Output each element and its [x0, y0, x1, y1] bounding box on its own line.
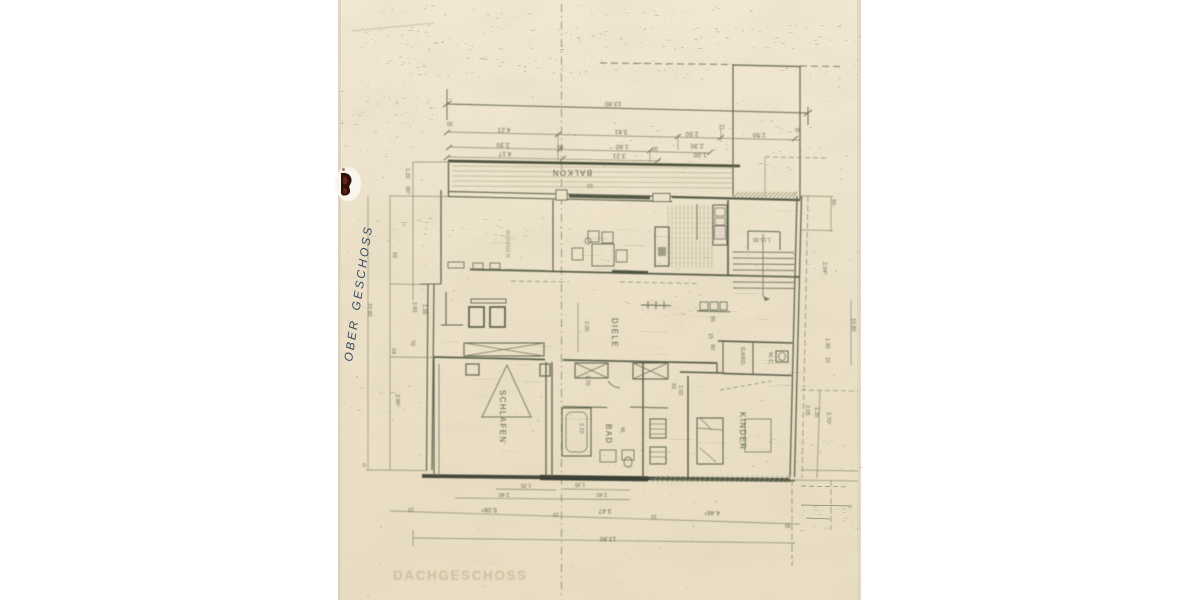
svg-text:WOHNEN: WOHNEN	[504, 230, 510, 258]
svg-text:2.02: 2.02	[677, 385, 683, 396]
svg-text:2.40: 2.40	[597, 491, 608, 497]
svg-text:2.40: 2.40	[499, 491, 510, 497]
svg-text:4.17: 4.17	[498, 150, 511, 157]
svg-text:0: 0	[363, 461, 366, 467]
svg-text:3.61: 3.61	[614, 128, 627, 135]
svg-text:95: 95	[709, 316, 715, 322]
svg-text:2.04⁵: 2.04⁵	[821, 262, 827, 275]
svg-text:W.: W.	[619, 427, 625, 433]
svg-text:1.70: 1.70	[584, 375, 590, 386]
svg-text:W.C.: W.C.	[767, 352, 773, 366]
svg-text:2.65: 2.65	[411, 302, 417, 313]
svg-text:3.70⁵: 3.70⁵	[825, 412, 831, 425]
svg-text:DIELE: DIELE	[610, 318, 619, 348]
svg-text:1.20: 1.20	[404, 168, 410, 179]
svg-text:2.00: 2.00	[583, 321, 589, 332]
svg-text:4.46⁵: 4.46⁵	[704, 509, 720, 516]
svg-text:30: 30	[785, 522, 791, 528]
svg-text:BAD: BAD	[604, 424, 613, 445]
svg-text:4.27: 4.27	[497, 126, 510, 133]
svg-text:24: 24	[390, 348, 396, 354]
svg-text:30: 30	[447, 120, 453, 126]
svg-text:1.00: 1.00	[693, 151, 706, 158]
svg-text:13.80: 13.80	[599, 535, 616, 542]
svg-text:5.08⁵: 5.08⁵	[481, 506, 497, 513]
svg-text:2.10: 2.10	[578, 423, 584, 434]
svg-text:15: 15	[824, 357, 830, 363]
svg-text:90: 90	[709, 344, 715, 350]
svg-text:3.21: 3.21	[612, 152, 625, 159]
svg-text:10.80: 10.80	[366, 303, 372, 317]
svg-text:22: 22	[408, 506, 414, 512]
svg-text:KINDER: KINDER	[738, 412, 747, 450]
svg-text:1.35: 1.35	[813, 407, 819, 418]
svg-text:15: 15	[707, 333, 713, 339]
svg-text:10.80: 10.80	[850, 318, 856, 332]
svg-text:50: 50	[587, 182, 593, 188]
svg-text:12: 12	[719, 123, 725, 129]
svg-text:1.60: 1.60	[615, 143, 628, 150]
svg-text:1.35: 1.35	[421, 304, 427, 315]
svg-text:10: 10	[651, 513, 657, 519]
svg-text:1.15 30: 1.15 30	[753, 236, 771, 242]
svg-text:30⁵: 30⁵	[404, 186, 410, 194]
svg-text:GARD.: GARD.	[739, 347, 745, 367]
svg-text:BALKON: BALKON	[551, 168, 592, 177]
svg-text:13.80: 13.80	[604, 100, 621, 107]
svg-text:3.47: 3.47	[598, 507, 611, 514]
svg-text:70: 70	[409, 340, 415, 346]
svg-text:2.50: 2.50	[752, 131, 765, 138]
svg-text:55: 55	[391, 252, 397, 258]
svg-text:2.05: 2.05	[804, 405, 810, 416]
svg-text:DACHGESCHOSS: DACHGESCHOSS	[393, 568, 528, 583]
svg-text:1.35: 1.35	[521, 482, 532, 488]
svg-text:2.30: 2.30	[690, 142, 703, 149]
svg-text:93: 93	[670, 383, 676, 389]
svg-text:2.30: 2.30	[496, 141, 509, 148]
svg-text:1.30: 1.30	[824, 338, 830, 349]
svg-text:3.96⁵: 3.96⁵	[394, 394, 400, 407]
svg-text:2.50: 2.50	[685, 130, 698, 137]
svg-text:10: 10	[553, 511, 559, 517]
svg-text:1.35: 1.35	[575, 481, 586, 487]
